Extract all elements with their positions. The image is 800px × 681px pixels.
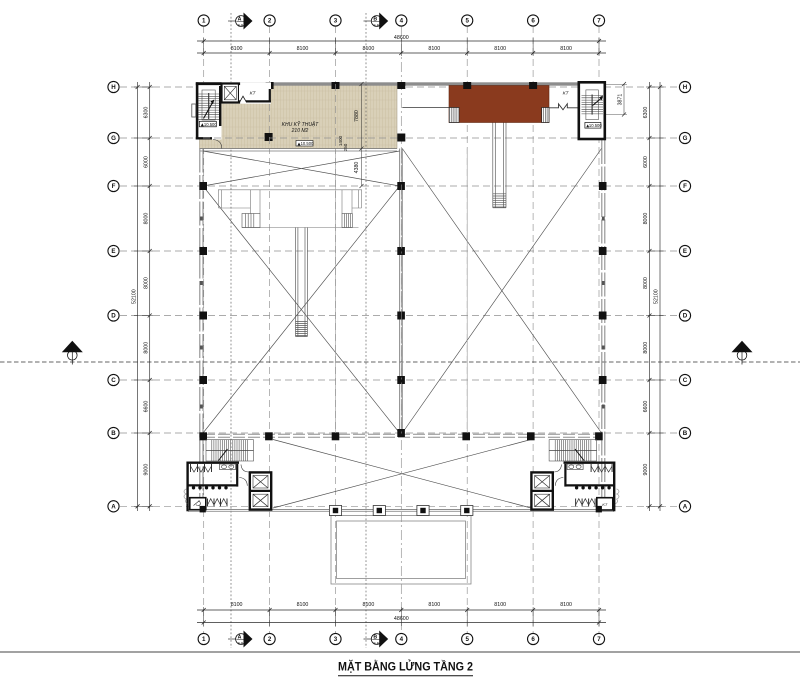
svg-text:D: D (683, 313, 688, 320)
svg-text:4: 4 (400, 18, 404, 25)
svg-text:D-D: D-D (739, 348, 746, 352)
svg-text:8100: 8100 (494, 602, 506, 608)
svg-text:8100: 8100 (363, 46, 375, 52)
svg-text:5: 5 (465, 18, 469, 25)
svg-text:KHU KỸ THUẬT: KHU KỸ THUẬT (282, 121, 320, 128)
svg-text:8100: 8100 (494, 46, 506, 52)
svg-text:8000: 8000 (643, 342, 649, 354)
svg-text:S-B: S-B (374, 642, 379, 646)
svg-text:6000: 6000 (643, 156, 649, 168)
svg-text:4: 4 (400, 636, 404, 643)
svg-text:3: 3 (334, 18, 338, 25)
svg-text:52100: 52100 (654, 289, 660, 304)
svg-text:G: G (683, 135, 688, 142)
svg-text:6000: 6000 (144, 156, 150, 168)
svg-text:8000: 8000 (144, 277, 150, 289)
svg-text:S-B: S-B (238, 642, 243, 646)
svg-text:8100: 8100 (231, 602, 243, 608)
svg-text:6600: 6600 (643, 401, 649, 413)
svg-text:10.500: 10.500 (589, 123, 602, 128)
svg-text:8100: 8100 (428, 602, 440, 608)
svg-text:6300: 6300 (144, 107, 150, 119)
svg-text:250: 250 (343, 143, 348, 151)
svg-text:5: 5 (465, 636, 469, 643)
svg-text:6: 6 (531, 636, 535, 643)
svg-text:9000: 9000 (144, 464, 150, 476)
svg-text:4380: 4380 (354, 162, 360, 174)
svg-text:8100: 8100 (560, 46, 572, 52)
svg-text:8000: 8000 (144, 342, 150, 354)
svg-text:A: A (683, 504, 688, 511)
svg-text:7880: 7880 (354, 110, 360, 122)
svg-text:2: 2 (268, 636, 272, 643)
svg-text:C: C (683, 377, 688, 384)
svg-text:8100: 8100 (297, 46, 309, 52)
svg-text:8000: 8000 (643, 213, 649, 225)
svg-text:8100: 8100 (560, 602, 572, 608)
svg-text:D: D (111, 313, 116, 320)
svg-text:H: H (111, 84, 116, 91)
svg-text:1: 1 (202, 18, 206, 25)
svg-text:D-D: D-D (69, 348, 76, 352)
svg-text:9000: 9000 (643, 464, 649, 476)
svg-text:3871: 3871 (618, 94, 624, 106)
svg-text:1: 1 (202, 636, 206, 643)
svg-text:6600: 6600 (144, 401, 150, 413)
svg-text:10.500: 10.500 (204, 122, 217, 127)
svg-text:MẶT BẰNG LỬNG TẦNG 2: MẶT BẰNG LỬNG TẦNG 2 (338, 659, 473, 674)
svg-text:8000: 8000 (144, 213, 150, 225)
svg-text:210 M2: 210 M2 (291, 128, 309, 134)
svg-text:E: E (111, 248, 115, 255)
svg-text:8100: 8100 (428, 46, 440, 52)
svg-text:7: 7 (597, 18, 601, 25)
svg-text:F: F (112, 183, 116, 190)
svg-text:B: B (683, 430, 688, 437)
svg-text:B: B (111, 430, 116, 437)
svg-text:C: C (111, 377, 116, 384)
svg-text:S-B: S-B (238, 24, 243, 28)
svg-text:8100: 8100 (297, 602, 309, 608)
svg-text:H: H (683, 84, 688, 91)
svg-text:2: 2 (268, 18, 272, 25)
svg-text:7: 7 (597, 636, 601, 643)
svg-text:8100: 8100 (363, 602, 375, 608)
svg-text:G: G (111, 135, 116, 142)
svg-text:6: 6 (531, 18, 535, 25)
svg-text:8000: 8000 (643, 277, 649, 289)
svg-text:48600: 48600 (394, 35, 409, 41)
svg-text:52100: 52100 (132, 289, 138, 304)
svg-text:10.500: 10.500 (301, 141, 314, 146)
svg-text:F: F (683, 183, 687, 190)
svg-text:6300: 6300 (643, 107, 649, 119)
svg-text:KT: KT (602, 502, 608, 507)
svg-text:8100: 8100 (231, 46, 243, 52)
svg-text:A: A (111, 504, 116, 511)
svg-text:E: E (683, 248, 687, 255)
svg-text:3: 3 (334, 636, 338, 643)
svg-text:48600: 48600 (394, 616, 409, 622)
svg-text:S-B: S-B (374, 24, 379, 28)
